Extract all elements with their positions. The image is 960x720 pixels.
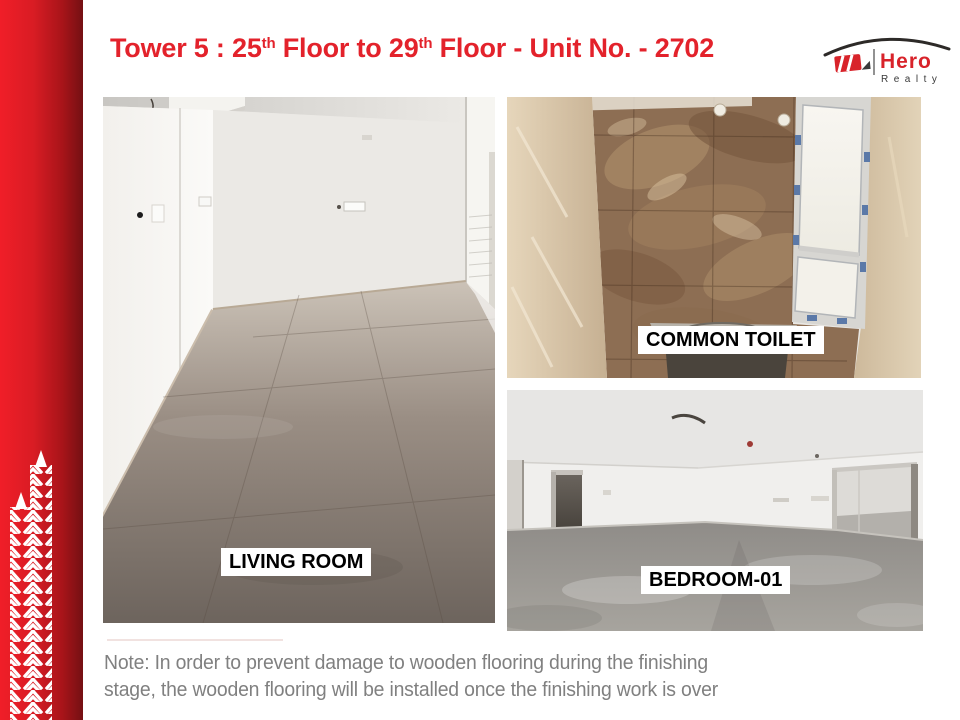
logo-mark-icon <box>834 53 870 73</box>
ceiling-red-dot <box>747 441 753 447</box>
note-text: Note: In order to prevent damage to wood… <box>104 650 924 704</box>
logo-subtitle-text: Realty <box>881 74 942 85</box>
room-label-bedroom: BEDROOM-01 <box>641 566 790 594</box>
title-superscript: th <box>419 35 433 52</box>
bedroom-scene <box>507 390 923 631</box>
sidebar-accent-bar <box>0 0 83 720</box>
divider-line <box>107 639 283 641</box>
wall-tag <box>152 205 164 222</box>
window <box>792 97 871 329</box>
page-title: Tower 5 : 25th Floor to 29th Floor - Uni… <box>110 33 810 64</box>
room-label-common-toilet: COMMON TOILET <box>638 326 824 354</box>
photo-common-toilet: COMMON TOILET <box>507 97 921 378</box>
title-text: Tower 5 : 25 <box>110 33 262 63</box>
logo-brand-text: Hero <box>880 50 932 73</box>
cream-wall-left <box>507 97 607 378</box>
balcony-window <box>466 97 495 309</box>
wall-hole <box>137 212 143 218</box>
slide: Tower 5 : 25th Floor to 29th Floor - Uni… <box>0 0 960 720</box>
wall-mark <box>362 135 372 140</box>
photo-bedroom: BEDROOM-01 <box>507 390 923 631</box>
hero-realty-logo: Hero Realty <box>820 24 954 88</box>
back-wall <box>213 110 466 310</box>
note-line-1: Note: In order to prevent damage to wood… <box>104 650 924 677</box>
switch-plate <box>199 197 211 206</box>
wheat-pattern-icon <box>0 450 83 720</box>
title-superscript: th <box>262 35 276 52</box>
photo-living-room: LIVING ROOM <box>103 97 495 623</box>
room-label-living-room: LIVING ROOM <box>221 548 371 576</box>
living-room-scene <box>103 97 495 623</box>
note-line-2: stage, the wooden flooring will be insta… <box>104 677 924 704</box>
